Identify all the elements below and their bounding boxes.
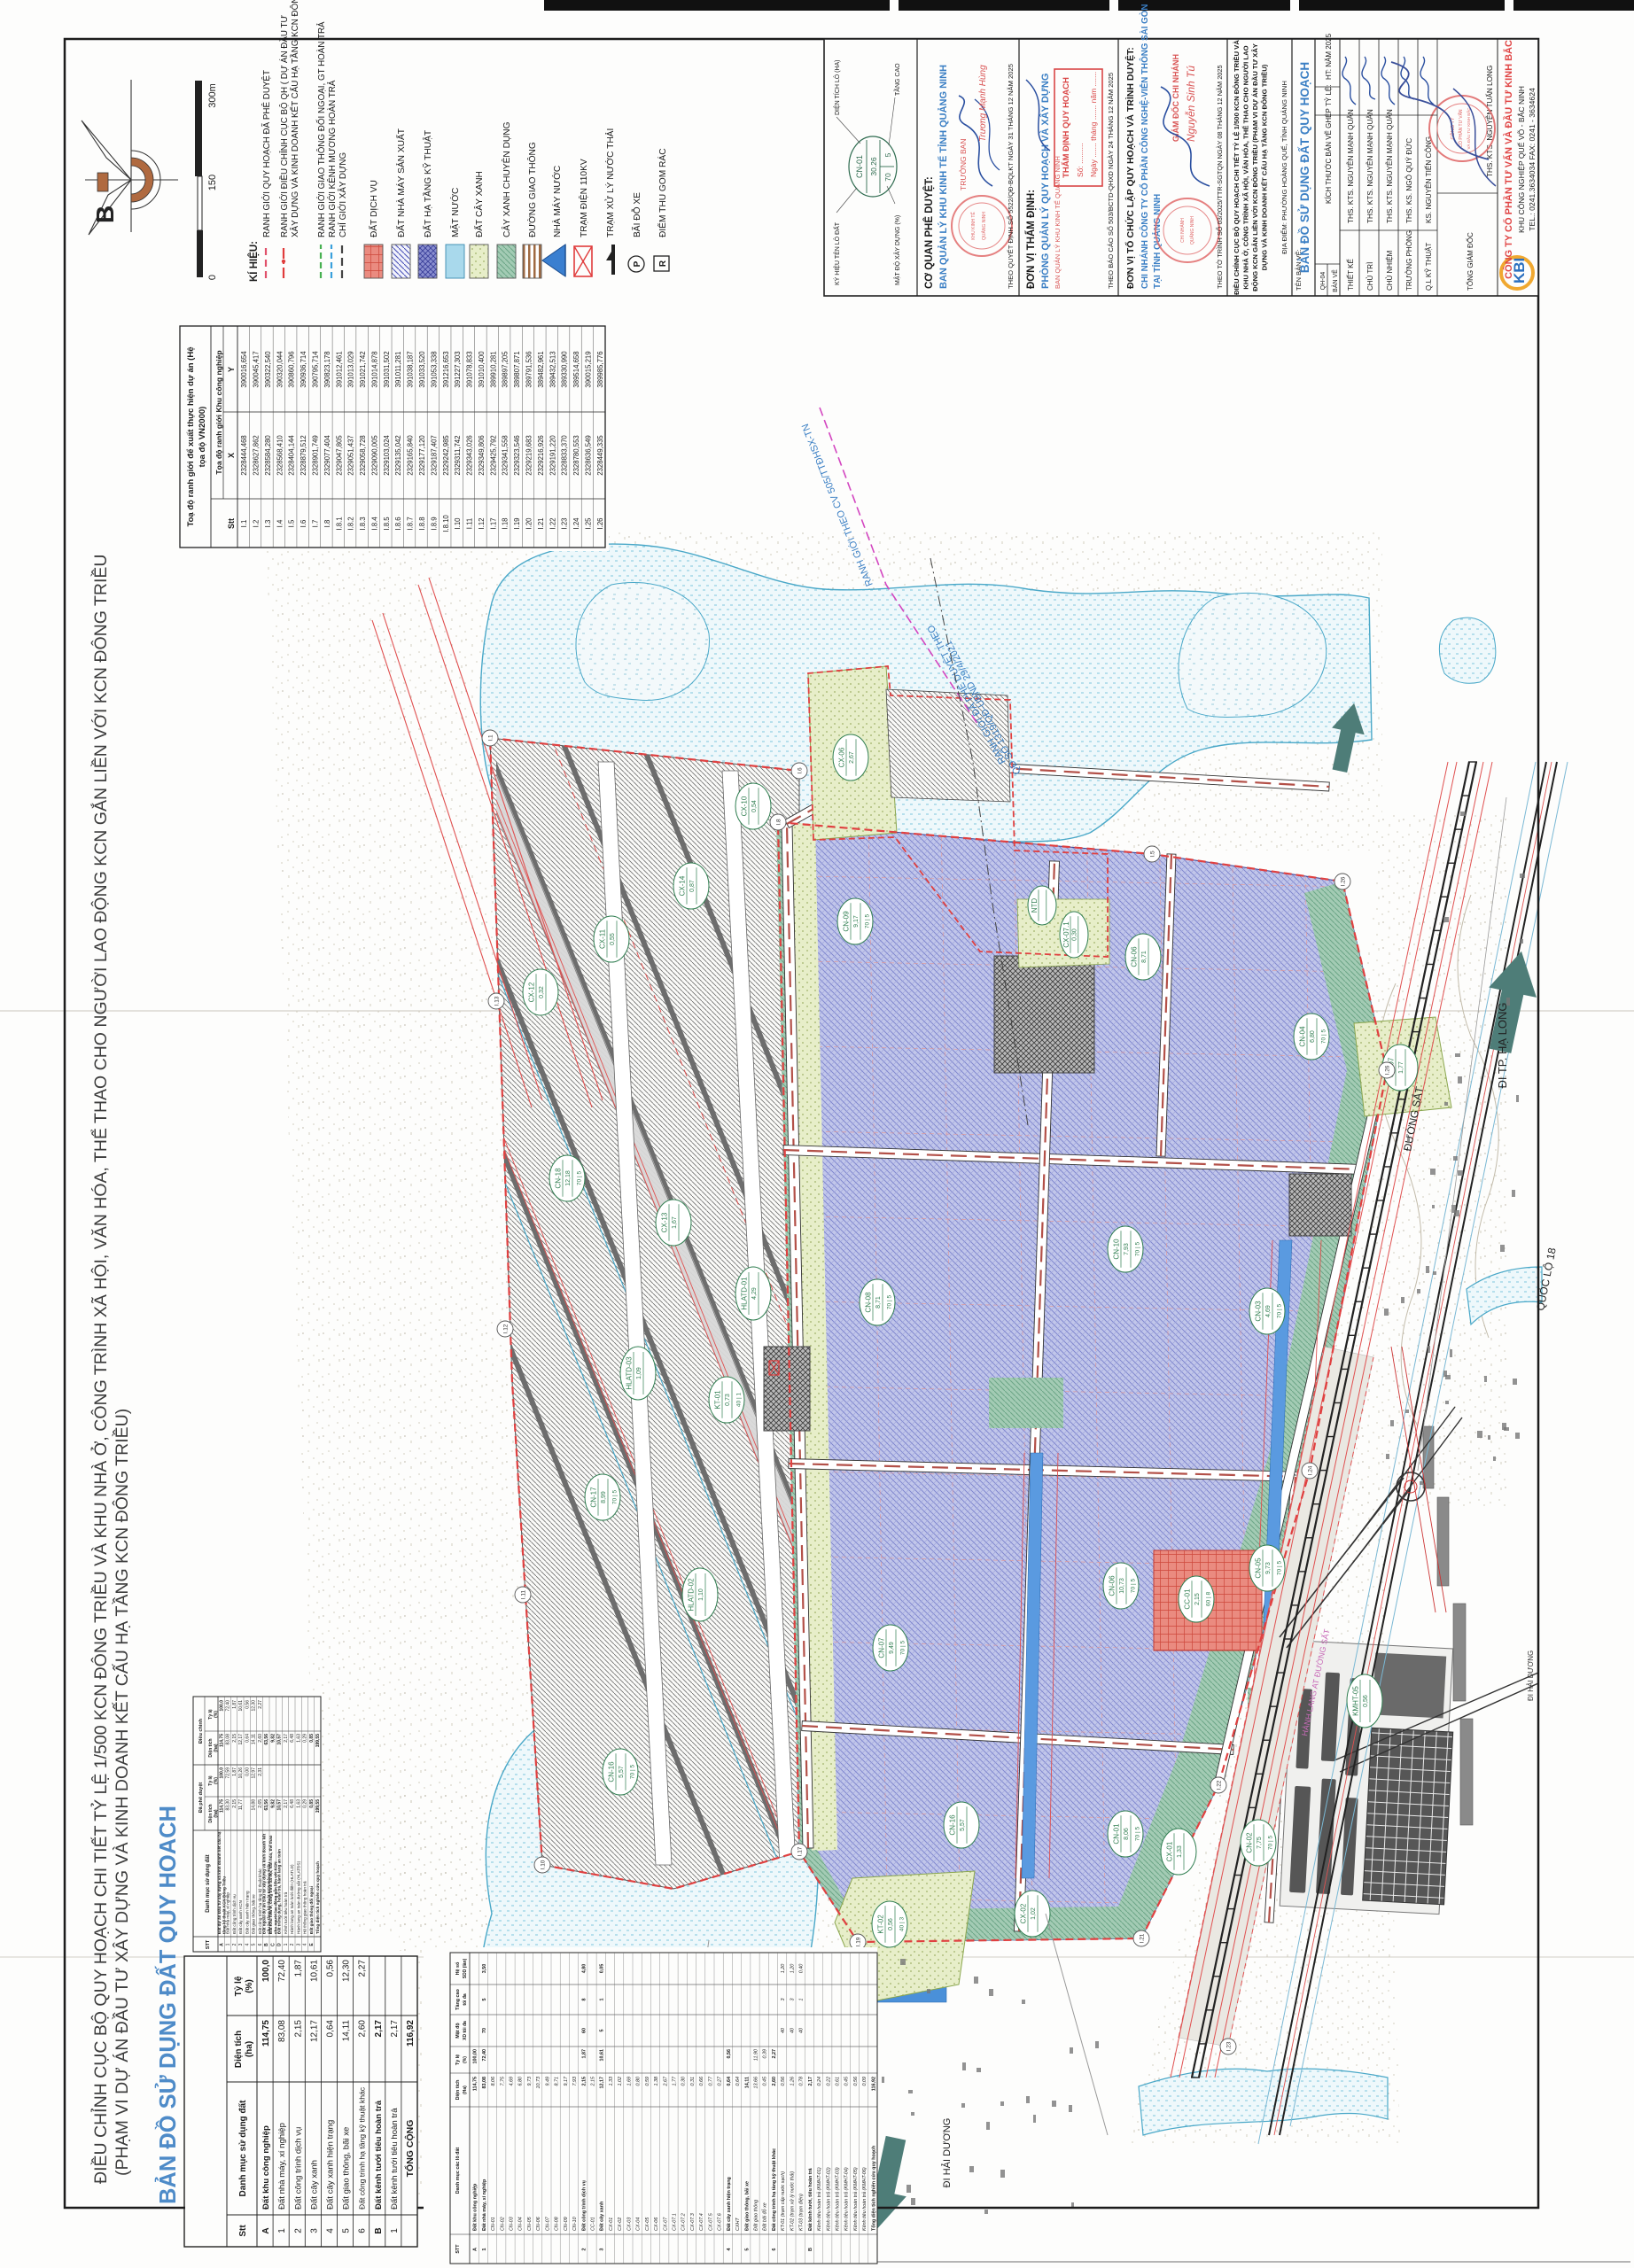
svg-text:2329323,546: 2329323,546	[513, 435, 521, 476]
svg-text:CN-06: CN-06	[1108, 1575, 1116, 1596]
svg-text:CN-07: CN-07	[877, 1637, 885, 1658]
svg-text:1,33: 1,33	[609, 2077, 614, 2086]
svg-text:KÍCH THƯỚC BẢN VẼ GHÉP: KÍCH THƯỚC BẢN VẼ GHÉP	[1325, 108, 1333, 204]
svg-text:8,71: 8,71	[555, 2077, 560, 2086]
svg-text:(ha): (ha)	[214, 1744, 219, 1752]
svg-text:100,00: 100,00	[473, 2049, 479, 2064]
svg-text:KMHT-05: KMHT-05	[1351, 1686, 1359, 1716]
svg-text:GIÁM ĐỐC CHI NHÁNH: GIÁM ĐỐC CHI NHÁNH	[1171, 54, 1180, 142]
svg-text:0,40: 0,40	[799, 1964, 805, 1974]
svg-text:Đất nhà máy, xí nghiệp: Đất nhà máy, xí nghiệp	[226, 1892, 230, 1934]
svg-text:7,93: 7,93	[1124, 1243, 1130, 1255]
svg-text:390320,044: 390320,044	[276, 351, 284, 388]
svg-text:I.8.10: I.8.10	[442, 515, 450, 532]
svg-text:2329311,742: 2329311,742	[454, 436, 462, 476]
svg-text:CHI NHÁNH: CHI NHÁNH	[1179, 218, 1186, 243]
svg-text:Đất công trình dịch vụ: Đất công trình dịch vụ	[293, 2127, 303, 2210]
svg-text:BẢN ĐỒ SỬ DỤNG ĐẤT QUY HOẠCH: BẢN ĐỒ SỬ DỤNG ĐẤT QUY HOẠCH	[154, 1806, 181, 2204]
svg-text:QUẢNG NINH: QUẢNG NINH	[1189, 216, 1195, 245]
svg-text:60 | 8: 60 | 8	[1206, 1592, 1212, 1607]
svg-text:STT: STT	[455, 2244, 461, 2254]
svg-text:2329216,926: 2329216,926	[537, 435, 545, 476]
svg-text:70 | 5: 70 | 5	[1135, 1242, 1141, 1257]
svg-text:Kênh tiêu hoàn trả (KMHT-04): Kênh tiêu hoàn trả (KMHT-04)	[844, 2167, 850, 2231]
svg-text:0,56: 0,56	[1363, 1695, 1369, 1707]
svg-text:I.10: I.10	[454, 517, 462, 530]
svg-text:I.10: I.10	[541, 1860, 547, 1869]
svg-text:0,30: 0,30	[1072, 928, 1078, 941]
svg-text:I.21: I.21	[1140, 1933, 1146, 1943]
svg-text:0,56: 0,56	[888, 1918, 894, 1930]
svg-text:70: 70	[883, 173, 892, 182]
svg-text:ĐI HẢI DƯƠNG: ĐI HẢI DƯƠNG	[941, 2118, 953, 2188]
svg-text:Đất công trình dịch vụ: Đất công trình dịch vụ	[580, 2180, 587, 2231]
svg-text:CN-09: CN-09	[564, 2217, 569, 2231]
svg-text:A: A	[219, 1943, 224, 1946]
svg-text:2329077,404: 2329077,404	[323, 435, 331, 476]
svg-text:14,11: 14,11	[252, 1734, 257, 1744]
svg-text:2,17: 2,17	[374, 2020, 384, 2038]
svg-text:8,06: 8,06	[1124, 1828, 1130, 1840]
svg-text:10,26: 10,26	[238, 1767, 244, 1779]
svg-text:0,61: 0,61	[836, 2077, 841, 2086]
svg-text:6: 6	[772, 2248, 777, 2250]
svg-text:CX-04: CX-04	[636, 2218, 642, 2231]
svg-text:9,73: 9,73	[1265, 1562, 1272, 1574]
svg-text:NHÀ MÁY NƯỚC: NHÀ MÁY NƯỚC	[551, 166, 563, 237]
svg-text:389807,871: 389807,871	[513, 351, 521, 387]
svg-text:CÂY XANH CHUYÊN DỤNG: CÂY XANH CHUYÊN DỤNG	[501, 121, 512, 237]
svg-text:CN-09: CN-09	[842, 911, 850, 932]
svg-text:CN-01: CN-01	[1112, 1823, 1120, 1845]
svg-text:CN-10: CN-10	[572, 2217, 578, 2231]
svg-text:2: 2	[293, 2228, 303, 2233]
svg-text:CXHT: CXHT	[735, 2218, 741, 2231]
svg-text:tọa độ VN2000): tọa độ VN2000)	[198, 407, 207, 468]
svg-text:I.18: I.18	[502, 517, 510, 529]
svg-text:BẢN ĐỒ SỬ DỤNG ĐẤT QUY HOẠCH: BẢN ĐỒ SỬ DỤNG ĐẤT QUY HOẠCH	[1298, 62, 1311, 273]
svg-text:TEL.: 0241.3634034 FAX: 024: TEL.: 0241.3634034 FAX: 0241 - 3634624	[1528, 88, 1537, 231]
svg-text:Đất nhà máy, xí nghiệp: Đất nhà máy, xí nghiệp	[277, 2123, 287, 2210]
svg-text:0,29: 0,29	[303, 1799, 308, 1808]
svg-text:RANH GIỚI QUY HOẠCH ĐÃ PHÊ DUY: RANH GIỚI QUY HOẠCH ĐÃ PHÊ DUYỆT	[262, 70, 272, 237]
svg-text:Đất nhà máy, xí nghiệp: Đất nhà máy, xí nghiệp	[481, 2179, 487, 2231]
svg-text:0,56: 0,56	[326, 1960, 336, 1977]
svg-text:Tỷ lệ: Tỷ lệ	[234, 1976, 244, 1996]
svg-text:389482,961: 389482,961	[537, 351, 545, 387]
svg-text:PHÒNG QUẢN LÝ QUY HOẠCH VÀ XÂY: PHÒNG QUẢN LÝ QUY HOẠCH VÀ XÂY DỰNG	[1039, 74, 1051, 289]
svg-text:Đất cây xanh: Đất cây xanh	[599, 2202, 605, 2231]
svg-text:2,60: 2,60	[258, 1734, 263, 1743]
svg-text:2,15: 2,15	[232, 1799, 237, 1808]
svg-text:5: 5	[600, 2030, 605, 2032]
svg-text:I.23: I.23	[561, 517, 569, 529]
svg-text:2,65: 2,65	[258, 1799, 263, 1808]
svg-text:2328404,144: 2328404,144	[288, 435, 296, 476]
svg-text:391216,653: 391216,653	[442, 351, 450, 387]
svg-text:2329103,024: 2329103,024	[383, 435, 391, 476]
svg-text:I.12: I.12	[503, 1324, 510, 1333]
svg-text:MẶT NƯỚC: MẶT NƯỚC	[449, 188, 461, 237]
svg-text:Stt: Stt	[227, 518, 236, 529]
svg-text:8: 8	[581, 1999, 587, 2001]
svg-text:CN-01: CN-01	[855, 155, 864, 178]
svg-text:391013,029: 391013,029	[347, 351, 355, 387]
svg-text:1: 1	[284, 1943, 289, 1946]
svg-text:72,40: 72,40	[226, 1700, 231, 1712]
svg-text:2329177,120: 2329177,120	[418, 435, 426, 476]
svg-text:12,97: 12,97	[252, 1767, 257, 1779]
svg-text:12,30: 12,30	[342, 1960, 352, 1982]
svg-text:I.8.7: I.8.7	[407, 517, 415, 530]
svg-text:70 | 5: 70 | 5	[887, 1295, 893, 1310]
svg-text:2,60: 2,60	[772, 2077, 777, 2086]
svg-text:THS. KTS. NGUYỄN MẠNH QUÂN: THS. KTS. NGUYỄN MẠNH QUÂN	[1345, 109, 1355, 223]
svg-text:9,82: 9,82	[270, 1799, 276, 1808]
svg-text:CN-06: CN-06	[1130, 946, 1138, 967]
svg-text:3: 3	[309, 2228, 319, 2233]
svg-text:1,09: 1,09	[636, 1367, 642, 1379]
svg-text:0,29: 0,29	[303, 1734, 308, 1743]
svg-text:(PHẠM VI DỰ ÁN ĐẦU TƯ XÂY DỰNG: (PHẠM VI DỰ ÁN ĐẦU TƯ XÂY DỰNG VÀ KINH D…	[112, 1409, 132, 2176]
svg-text:Đất cây xanh: Đất cây xanh	[309, 2160, 319, 2210]
svg-text:2,15: 2,15	[293, 2020, 303, 2038]
svg-text:I.26: I.26	[596, 517, 604, 529]
svg-text:Đất Khu nhà ở, công trình xã h: Đất Khu nhà ở, công trình xã hội, văn hó…	[268, 1835, 273, 1934]
svg-text:CN-04: CN-04	[518, 2217, 524, 2231]
svg-text:10,61: 10,61	[238, 1700, 244, 1712]
svg-text:XÂY DỰNG VÀ KINH DOANH KẾT CẤU: XÂY DỰNG VÀ KINH DOANH KẾT CẤU HẠ TẦNG K…	[291, 0, 300, 237]
svg-text:DIỆN TÍCH LÔ (HA): DIỆN TÍCH LÔ (HA)	[833, 60, 841, 116]
svg-text:Đã phê duyệt: Đã phê duyệt	[198, 1783, 204, 1814]
svg-text:KHU KINH TẾ: KHU KINH TẾ	[970, 212, 977, 240]
svg-text:ĐIỂM THU GOM RÁC: ĐIỂM THU GOM RÁC	[657, 148, 668, 237]
svg-text:KHU CÔNG NGHIỆP QUẾ VÕ - BẮC N: KHU CÔNG NGHIỆP QUẾ VÕ - BẮC NINH	[1517, 86, 1526, 233]
svg-text:2,15: 2,15	[232, 1734, 237, 1743]
svg-text:I.8.9: I.8.9	[430, 517, 438, 530]
svg-text:CHI NHÁNH CÔNG TY CỔ PHẦN CÔNG: CHI NHÁNH CÔNG TY CỔ PHẦN CÔNG NGHỆ-VIỄN…	[1140, 4, 1150, 290]
svg-text:14,11: 14,11	[744, 2077, 750, 2088]
svg-text:0,59: 0,59	[645, 2077, 650, 2086]
svg-text:Y: Y	[227, 367, 236, 372]
svg-text:0,45: 0,45	[763, 2076, 768, 2085]
svg-text:I.24: I.24	[572, 517, 580, 530]
svg-text:70 | 5: 70 | 5	[900, 1641, 906, 1656]
svg-text:I.17: I.17	[489, 517, 497, 529]
svg-text:5: 5	[342, 2228, 352, 2233]
svg-text:NTD: NTD	[1031, 898, 1039, 913]
svg-text:0,56: 0,56	[781, 2077, 786, 2086]
svg-text:I.22: I.22	[549, 517, 556, 529]
svg-text:I.8.5: I.8.5	[383, 517, 391, 531]
svg-text:0,56: 0,56	[245, 1700, 250, 1709]
svg-text:1,87: 1,87	[232, 1700, 237, 1709]
svg-text:CX-07: CX-07	[663, 2217, 668, 2231]
svg-text:1,20: 1,20	[790, 1964, 795, 1974]
svg-text:0,64: 0,64	[727, 2077, 732, 2086]
svg-text:I.12: I.12	[478, 517, 486, 529]
svg-text:2328833,370: 2328833,370	[561, 435, 569, 476]
svg-text:0,66: 0,66	[699, 2077, 704, 2086]
svg-text:KÍ HIỆU:: KÍ HIỆU:	[248, 241, 260, 282]
svg-text:10,61: 10,61	[600, 2049, 605, 2062]
svg-text:391031,502: 391031,502	[383, 351, 391, 387]
svg-text:2: 2	[581, 2248, 587, 2250]
svg-text:CN-05: CN-05	[1254, 1557, 1262, 1579]
svg-text:Tầng cao: Tầng cao	[455, 1988, 461, 2009]
svg-text:1: 1	[277, 2228, 287, 2233]
svg-text:ĐƠN VỊ THẨM ĐỊNH:: ĐƠN VỊ THẨM ĐỊNH:	[1025, 190, 1037, 289]
svg-text:CX-06: CX-06	[837, 747, 845, 767]
svg-text:Số: ..........: Số: ..........	[1076, 143, 1085, 177]
svg-text:ĐẤT DỊCH VỤ: ĐẤT DỊCH VỤ	[368, 180, 379, 237]
svg-text:2329242,985: 2329242,985	[442, 435, 450, 476]
svg-text:CC-01: CC-01	[591, 2217, 596, 2231]
svg-text:8,06: 8,06	[491, 2077, 496, 2086]
svg-text:6: 6	[258, 1943, 263, 1946]
svg-text:83,30: 83,30	[226, 1799, 231, 1811]
svg-text:CX-07.1: CX-07.1	[1062, 921, 1070, 948]
svg-text:11,90: 11,90	[754, 2049, 759, 2061]
svg-text:2,27: 2,27	[358, 1960, 368, 1977]
svg-text:ĐI HẢI DƯƠNG: ĐI HẢI DƯƠNG	[1527, 1651, 1535, 1701]
svg-text:TỔNG GIÁM ĐỐC: TỔNG GIÁM ĐỐC	[1466, 232, 1474, 291]
svg-text:5,57: 5,57	[960, 1819, 966, 1831]
svg-text:QUẢNG NINH: QUẢNG NINH	[981, 212, 987, 240]
svg-text:B: B	[91, 206, 119, 223]
svg-text:0,78: 0,78	[799, 2077, 805, 2086]
svg-text:390823,178: 390823,178	[323, 351, 331, 387]
svg-text:THS. KTS. NGUYỄN MẠNH QUÂN: THS. KTS. NGUYỄN MẠNH QUÂN	[1365, 109, 1374, 223]
svg-text:I.25: I.25	[584, 517, 592, 530]
svg-text:Diện tích: Diện tích	[234, 2031, 244, 2068]
svg-text:0,45: 0,45	[844, 2076, 850, 2085]
svg-text:2,15: 2,15	[591, 2076, 596, 2086]
svg-text:70 | 5: 70 | 5	[577, 1171, 583, 1186]
svg-text:Danh mục sử dụng đất: Danh mục sử dụng đất	[205, 1854, 211, 1912]
svg-text:Đất trưng dụng, hoàn trả, hành: Đất trưng dụng, hoàn trả, hành lang an t…	[276, 1849, 282, 1934]
svg-text:0,30: 0,30	[681, 2077, 687, 2086]
svg-text:40 | 1: 40 | 1	[736, 1393, 743, 1408]
svg-text:CN-02: CN-02	[1245, 1832, 1253, 1853]
svg-text:389791,536: 389791,536	[525, 351, 533, 387]
svg-text:83,08: 83,08	[482, 2077, 487, 2089]
svg-text:Trương Mạnh Hùng: Trương Mạnh Hùng	[978, 65, 988, 142]
svg-text:3: 3	[238, 1943, 244, 1946]
svg-text:R: R	[658, 260, 668, 267]
svg-text:72,40: 72,40	[482, 2049, 487, 2062]
svg-text:CX-10: CX-10	[740, 796, 748, 816]
svg-text:2328901,749: 2328901,749	[312, 435, 320, 476]
svg-text:12,17: 12,17	[600, 2077, 605, 2089]
svg-text:I.4: I.4	[276, 519, 284, 527]
svg-text:2328636,549: 2328636,549	[584, 435, 592, 476]
svg-text:BÃI ĐỖ XE: BÃI ĐỖ XE	[631, 192, 642, 237]
svg-text:I.5: I.5	[288, 519, 296, 527]
svg-text:CX-07.5: CX-07.5	[708, 2212, 713, 2231]
svg-text:6,80: 6,80	[518, 2077, 524, 2086]
svg-text:ĐƯỜNG GIAO THÔNG: ĐƯỜNG GIAO THÔNG	[526, 142, 538, 237]
svg-text:CX-12: CX-12	[527, 982, 535, 1002]
svg-text:1,02: 1,02	[618, 2077, 623, 2086]
svg-text:Kênh tiêu hoàn trả (KMHT-06): Kênh tiêu hoàn trả (KMHT-06)	[861, 2167, 868, 2231]
svg-text:7,93: 7,93	[572, 2077, 578, 2086]
svg-text:0,24: 0,24	[817, 2077, 822, 2086]
svg-text:13,66: 13,66	[754, 2077, 759, 2089]
svg-text:Kênh tiêu hoàn trả (KMHT-01): Kênh tiêu hoàn trả (KMHT-01)	[816, 2167, 822, 2231]
svg-text:199,55: 199,55	[315, 1799, 321, 1814]
svg-text:72,40: 72,40	[277, 1960, 287, 1982]
svg-text:390015,219: 390015,219	[584, 351, 592, 387]
svg-text:VÀ ĐẦU TƯ KINH BẮC: VÀ ĐẦU TƯ KINH BẮC	[1465, 107, 1471, 150]
svg-text:0,64: 0,64	[326, 2020, 336, 2038]
svg-text:100,0: 100,0	[261, 1960, 271, 1982]
svg-text:2,60: 2,60	[358, 2020, 368, 2038]
svg-text:70 | 5: 70 | 5	[1135, 1827, 1141, 1842]
svg-text:2328568,410: 2328568,410	[276, 435, 284, 476]
svg-text:0,05: 0,05	[600, 1964, 605, 1974]
svg-text:389514,658: 389514,658	[572, 351, 580, 387]
svg-text:100,0: 100,0	[219, 1700, 224, 1712]
svg-text:391010,400: 391010,400	[478, 351, 486, 388]
svg-text:CN-16: CN-16	[607, 1761, 615, 1783]
svg-text:1,63: 1,63	[296, 1799, 301, 1808]
svg-text:2329187,407: 2329187,407	[430, 435, 438, 476]
svg-text:CN-17: CN-17	[589, 1487, 597, 1508]
svg-text:CN-16: CN-16	[948, 1814, 956, 1836]
svg-text:70 | 5: 70 | 5	[1277, 1561, 1283, 1576]
svg-text:0,31: 0,31	[690, 2077, 696, 2086]
svg-text:4,80: 4,80	[581, 1964, 587, 1974]
svg-text:Kênh tiêu hoàn trả (KMHT-05): Kênh tiêu hoàn trả (KMHT-05)	[852, 2167, 859, 2231]
svg-text:THEO TỜ TRÌNH SỐ 03/2025/TTR-S: THEO TỜ TRÌNH SỐ 03/2025/TTR-SGTQN NGÀY …	[1215, 65, 1224, 289]
svg-text:0,27: 0,27	[718, 2076, 723, 2085]
svg-text:5: 5	[883, 152, 892, 157]
svg-text:KT-02 (trạm xử lý nước thải): KT-02 (trạm xử lý nước thải)	[789, 2171, 795, 2231]
svg-text:RANH GIỚI KÊNH MƯƠNG HOÀN TRẢ: RANH GIỚI KÊNH MƯƠNG HOÀN TRẢ	[327, 80, 338, 237]
svg-text:12,18: 12,18	[565, 1170, 572, 1186]
svg-text:70 | 5: 70 | 5	[612, 1490, 619, 1505]
svg-text:9,82: 9,82	[270, 1734, 276, 1743]
svg-text:TRẠM ĐIỆN 110KV: TRẠM ĐIỆN 110KV	[578, 159, 589, 237]
svg-text:1: 1	[226, 1943, 231, 1946]
svg-text:I.5: I.5	[1150, 850, 1156, 858]
svg-text:70: 70	[482, 2028, 487, 2033]
svg-text:2329090,005: 2329090,005	[370, 435, 378, 476]
svg-text:BẢN VẼ: BẢN VẼ	[1331, 269, 1339, 292]
svg-text:(ha): (ha)	[214, 1809, 219, 1818]
svg-text:DỰNG VÀ KINH DOANH KẾT CẤU HẠ: DỰNG VÀ KINH DOANH KẾT CẤU HẠ TẦNG KCN Đ…	[1260, 64, 1269, 270]
svg-text:300m: 300m	[207, 83, 218, 108]
svg-text:B: B	[374, 2227, 384, 2233]
svg-text:0,64: 0,64	[245, 1734, 250, 1743]
svg-text:2329191,220: 2329191,220	[549, 435, 556, 476]
svg-text:2,17: 2,17	[390, 2020, 400, 2038]
svg-text:5,57: 5,57	[619, 1766, 625, 1778]
svg-text:Đất cây xanh hiện trạng: Đất cây xanh hiện trạng	[245, 1891, 249, 1934]
svg-text:Đất cây xanh hiện trạng: Đất cây xanh hiện trạng	[326, 2120, 336, 2210]
svg-text:8,71: 8,71	[1141, 951, 1148, 963]
svg-text:40: 40	[781, 2028, 786, 2033]
svg-text:7,75: 7,75	[500, 2076, 505, 2085]
svg-text:391227,303: 391227,303	[454, 351, 462, 387]
svg-text:TRƯỞNG BAN: TRƯỞNG BAN	[958, 139, 968, 190]
svg-text:199,55: 199,55	[315, 1734, 321, 1748]
svg-text:I.8: I.8	[776, 819, 782, 826]
svg-text:I.21: I.21	[537, 517, 545, 529]
svg-text:1,10: 1,10	[698, 1588, 704, 1601]
svg-text:Đất giao thông đối ngoại: Đất giao thông đối ngoại	[308, 1886, 314, 1934]
svg-text:Tọa độ ranh giới Khu công nghi: Tọa độ ranh giới Khu công nghiệp	[214, 350, 223, 474]
svg-text:Đất công trình hạ tầng kỹ thuậ: Đất công trình hạ tầng kỹ thuật khác	[771, 2148, 777, 2231]
svg-text:CX-01: CX-01	[609, 2218, 614, 2231]
svg-text:0,00: 0,00	[245, 1767, 250, 1776]
svg-text:CX-13: CX-13	[660, 1212, 668, 1232]
svg-text:114,75: 114,75	[473, 2077, 479, 2091]
svg-text:CX-03: CX-03	[626, 2218, 632, 2231]
svg-text:5: 5	[252, 1943, 257, 1946]
svg-text:CX-07.1: CX-07.1	[673, 2213, 678, 2231]
svg-text:I.3: I.3	[264, 520, 272, 528]
svg-text:Nguyễn Sinh Tú: Nguyễn Sinh Tú	[1184, 66, 1197, 142]
svg-text:I.20: I.20	[525, 517, 533, 530]
svg-text:THS. KTS. NGUYỄN MẠNH QUÂN: THS. KTS. NGUYỄN MẠNH QUÂN	[1384, 109, 1394, 223]
svg-text:390795,714: 390795,714	[312, 351, 320, 388]
svg-text:0,64: 0,64	[735, 2077, 741, 2086]
svg-text:114,75: 114,75	[261, 2020, 271, 2047]
svg-text:I.11: I.11	[521, 1589, 527, 1599]
svg-text:I.6: I.6	[300, 520, 307, 528]
svg-text:(%): (%)	[214, 1711, 219, 1718]
svg-text:CX-06: CX-06	[654, 2218, 659, 2231]
svg-text:QH-04: QH-04	[1320, 272, 1327, 291]
svg-text:RANH GIỚI GIAO THÔNG ĐỐI NGOẠI: RANH GIỚI GIAO THÔNG ĐỐI NGOẠI, GT HOÀN …	[316, 21, 327, 237]
svg-text:D: D	[277, 1943, 283, 1946]
svg-text:0: 0	[207, 275, 218, 280]
svg-text:63,56: 63,56	[264, 1734, 269, 1745]
svg-text:Điều chỉnh: Điều chỉnh	[198, 1718, 204, 1744]
svg-text:Đất công trình hạ tầng kỹ thuậ: Đất công trình hạ tầng kỹ thuật khác	[358, 2086, 367, 2210]
svg-text:389897,205: 389897,205	[502, 351, 510, 388]
svg-text:2,15: 2,15	[581, 2077, 587, 2086]
svg-text:I.1: I.1	[240, 520, 248, 528]
svg-text:116,92: 116,92	[871, 2077, 876, 2091]
svg-text:4,69: 4,69	[1265, 1305, 1272, 1317]
svg-text:Đất ngoài dự án Đầu tư xây dựn: Đất ngoài dự án Đầu tư xây dựng và kinh …	[261, 1833, 267, 1934]
svg-text:I.19: I.19	[513, 517, 521, 529]
svg-text:391011,281: 391011,281	[394, 352, 402, 388]
svg-text:Đất giao thông: Đất giao thông	[753, 2200, 759, 2231]
svg-text:116,92: 116,92	[406, 2020, 416, 2047]
svg-text:0,55: 0,55	[610, 933, 616, 945]
svg-text:2,17: 2,17	[284, 1799, 289, 1808]
svg-text:2329219,683: 2329219,683	[525, 435, 533, 476]
svg-text:X: X	[227, 453, 236, 458]
svg-text:CHỦ NHIỆM: CHỦ NHIỆM	[1386, 250, 1394, 291]
svg-text:CX-07.4: CX-07.4	[699, 2213, 704, 2231]
svg-text:CN-08: CN-08	[555, 2217, 560, 2231]
svg-text:Toạ độ ranh giới để xuất thực: Toạ độ ranh giới để xuất thực hiện dự án…	[186, 347, 196, 527]
svg-text:HT: NĂM 2025: HT: NĂM 2025	[1325, 33, 1333, 80]
svg-text:2328584,280: 2328584,280	[264, 435, 272, 476]
svg-text:2,15: 2,15	[1194, 1593, 1201, 1605]
svg-text:I.8: I.8	[323, 520, 331, 528]
svg-text:XD tối đa: XD tối đa	[462, 2021, 468, 2040]
svg-text:2,31: 2,31	[258, 1767, 263, 1776]
svg-text:10,57: 10,57	[277, 1799, 283, 1811]
svg-text:11,77: 11,77	[238, 1799, 244, 1810]
svg-text:1,63: 1,63	[296, 1734, 301, 1743]
